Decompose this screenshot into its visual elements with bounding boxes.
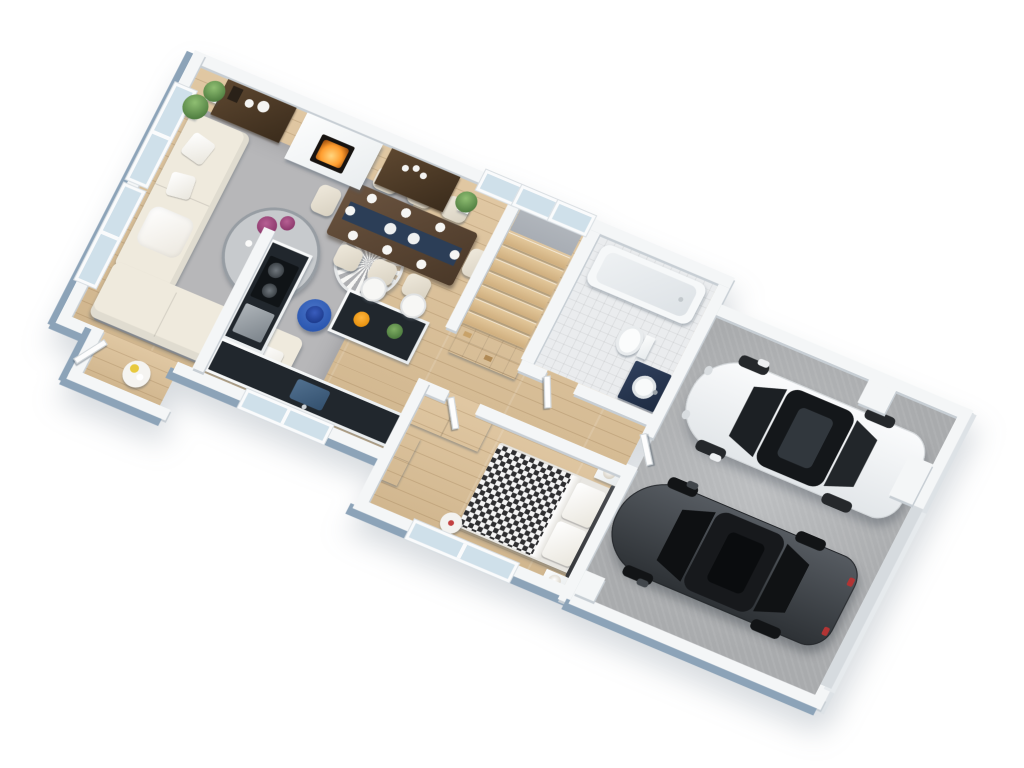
floor-plan-render <box>0 0 1024 768</box>
bathroom-door <box>544 375 552 408</box>
house-plan <box>20 50 1006 735</box>
